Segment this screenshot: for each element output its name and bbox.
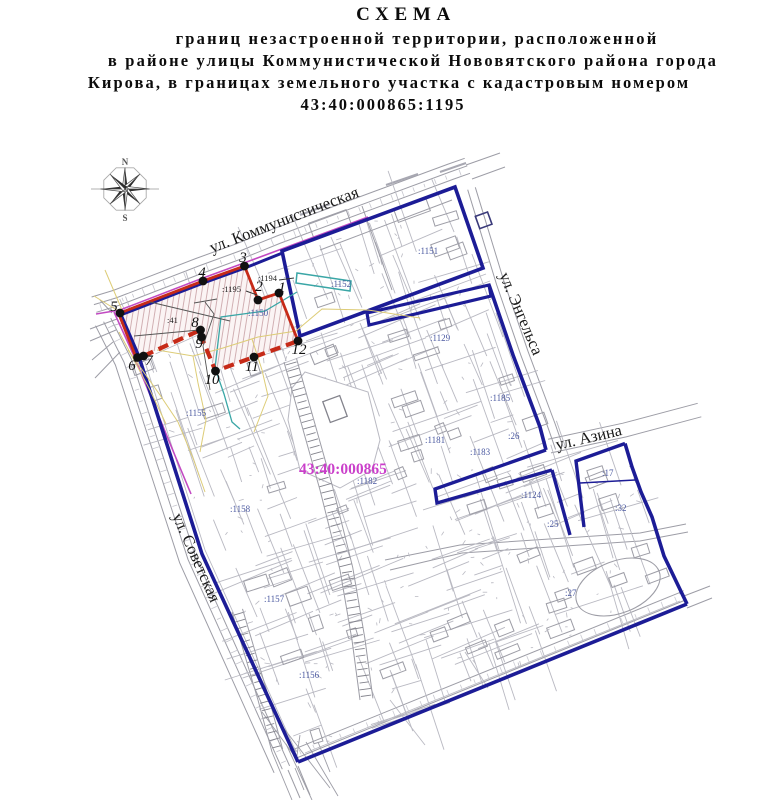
svg-text:6: 6 <box>128 358 136 374</box>
svg-text::1152: :1152 <box>331 279 351 289</box>
svg-text::1151: :1151 <box>418 246 438 256</box>
svg-text::1185: :1185 <box>490 393 511 403</box>
svg-text:1: 1 <box>278 280 286 296</box>
svg-text:9: 9 <box>195 336 203 352</box>
svg-text:8: 8 <box>191 315 199 331</box>
svg-text:5: 5 <box>110 299 118 315</box>
svg-text:43:40:000865: 43:40:000865 <box>299 461 387 478</box>
svg-text:S: S <box>122 213 127 223</box>
svg-text::1194: :1194 <box>258 273 278 283</box>
svg-text::25: :25 <box>547 519 559 529</box>
svg-text::1181: :1181 <box>425 435 445 445</box>
svg-text::1158: :1158 <box>230 504 251 514</box>
svg-text:ул. Энгельса: ул. Энгельса <box>495 269 547 358</box>
svg-text::17: :17 <box>602 468 614 478</box>
svg-text::1156: :1156 <box>299 670 320 680</box>
svg-text:12: 12 <box>292 342 308 358</box>
svg-text::1129: :1129 <box>430 333 451 343</box>
svg-text::26: :26 <box>508 431 520 441</box>
svg-text::1124: :1124 <box>521 490 542 500</box>
svg-text:11: 11 <box>245 359 259 375</box>
svg-text::1195: :1195 <box>222 284 241 294</box>
svg-text:4: 4 <box>198 265 206 281</box>
svg-text::41: :41 <box>167 315 178 325</box>
svg-text:N: N <box>122 157 129 167</box>
svg-text::1155: :1155 <box>186 408 207 418</box>
svg-text:3: 3 <box>238 250 247 266</box>
svg-text::1150: :1150 <box>248 308 269 318</box>
svg-text:10: 10 <box>205 372 221 388</box>
svg-text::32: :32 <box>615 503 627 513</box>
svg-text::27: :27 <box>565 588 577 598</box>
svg-text::1183: :1183 <box>470 447 491 457</box>
svg-text::1157: :1157 <box>264 594 285 604</box>
